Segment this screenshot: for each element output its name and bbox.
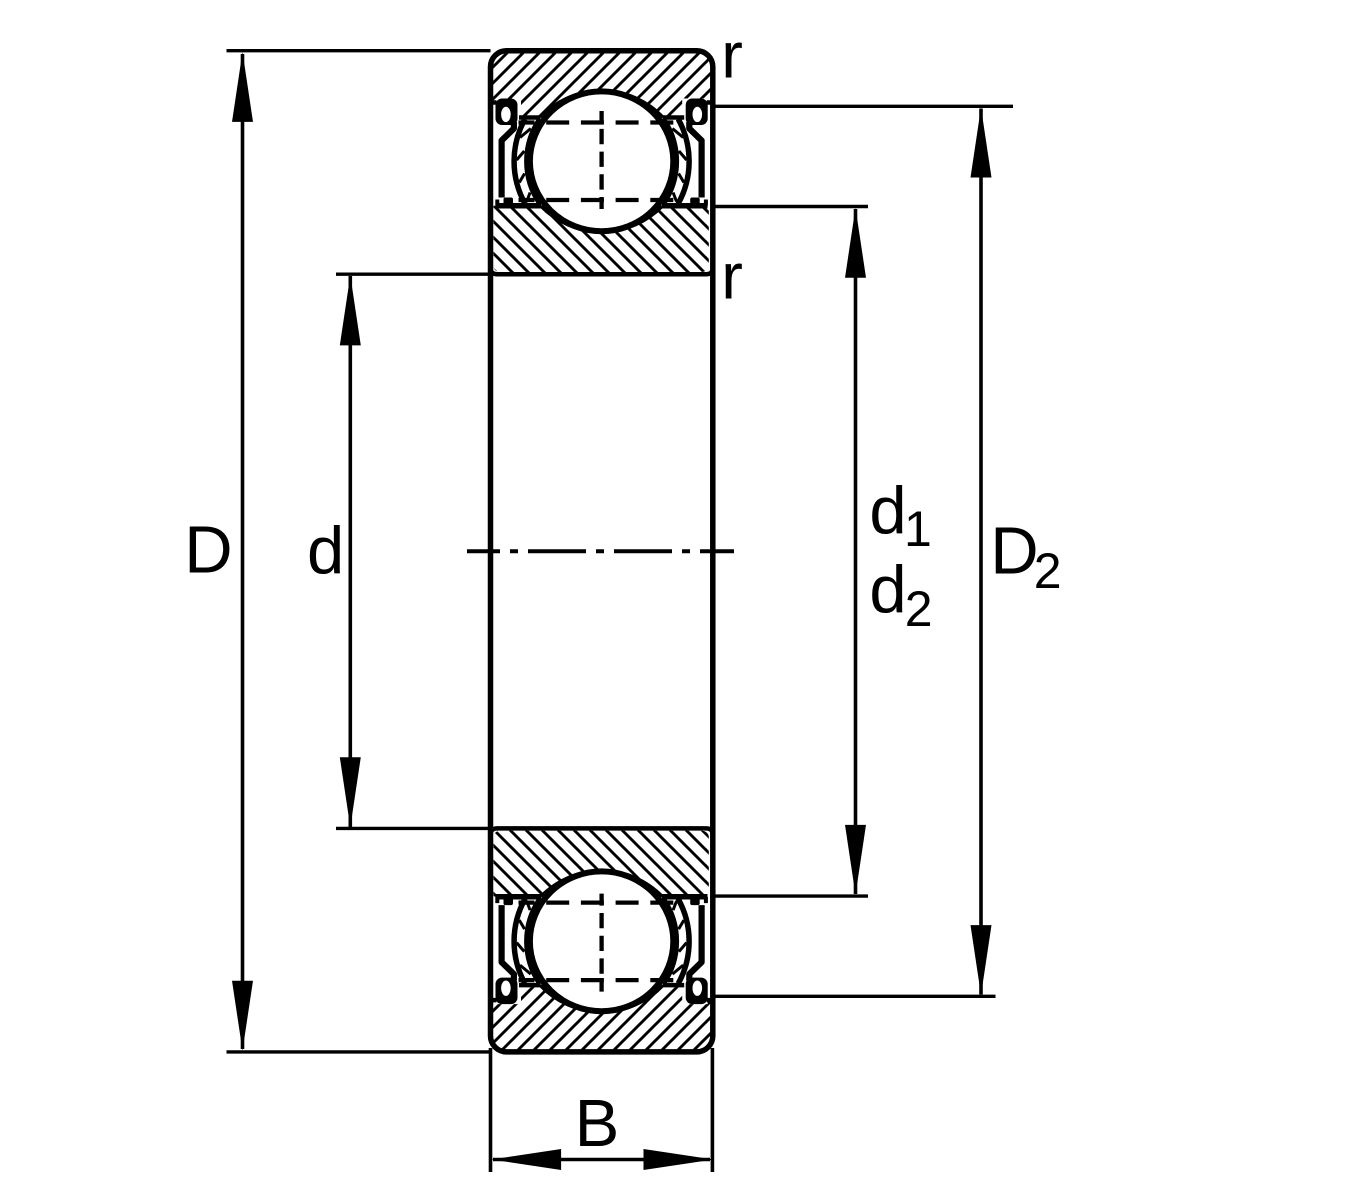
svg-text:1: 1 xyxy=(904,501,932,557)
svg-text:2: 2 xyxy=(905,581,933,637)
svg-text:r: r xyxy=(721,19,743,92)
svg-text:B: B xyxy=(575,1086,620,1161)
svg-text:2: 2 xyxy=(1034,543,1062,599)
svg-text:d: d xyxy=(869,553,906,628)
svg-text:d: d xyxy=(307,514,344,589)
svg-text:d: d xyxy=(869,474,906,549)
svg-text:D: D xyxy=(184,513,232,588)
svg-text:r: r xyxy=(721,239,743,312)
svg-text:D: D xyxy=(990,514,1038,589)
